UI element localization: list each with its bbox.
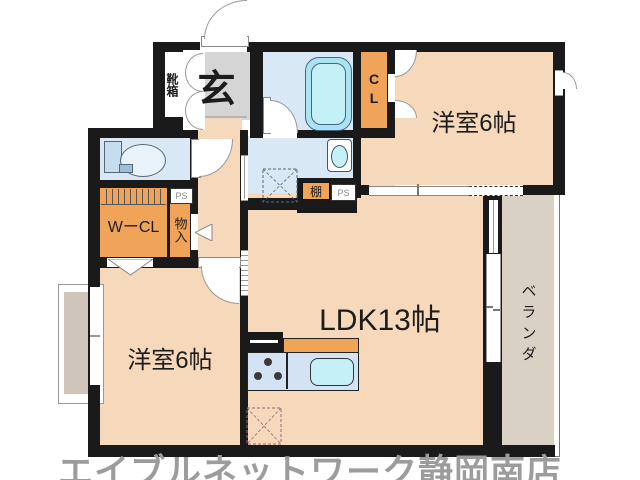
pipe-space-right: PS xyxy=(331,184,356,201)
room-partition-sliding-door xyxy=(369,186,469,196)
bathtub-inner xyxy=(311,63,346,125)
stove-burner-3 xyxy=(264,358,272,366)
shelf-label: 棚 xyxy=(302,182,330,200)
room-partition-tick xyxy=(417,184,419,196)
wcl-folding-door-mark xyxy=(108,259,153,276)
veranda-upper-window-line xyxy=(493,200,494,253)
wall-right xyxy=(553,42,565,195)
side-window-ledge xyxy=(64,292,91,394)
wall-cl-bottom xyxy=(358,128,395,138)
stove-burner-2 xyxy=(274,372,282,380)
stove-burner-1 xyxy=(254,372,262,380)
entrance-door-arc xyxy=(204,0,247,39)
wash-basin-bowl xyxy=(331,145,348,168)
veranda-sliding-door-tick-1 xyxy=(486,306,493,308)
bedroom-bottom-west-window-tick xyxy=(90,335,100,337)
hall-ldk-accordion-door xyxy=(241,250,248,296)
kitchen-stub-line xyxy=(250,340,278,343)
kitchen-sink xyxy=(310,358,354,386)
kitchen-counter-divider xyxy=(286,352,288,389)
veranda-sliding-door xyxy=(486,254,501,362)
wall-toilet-bottom xyxy=(88,180,198,188)
pipe-space-left: PS xyxy=(170,188,193,204)
genkan-label: 玄 xyxy=(183,56,250,114)
washroom-sliding-door-line xyxy=(244,155,245,199)
storage-label: 物入 xyxy=(170,206,190,254)
wcl-label: WーCL xyxy=(100,212,167,238)
store-name-watermark: エイブルネットワーク静岡南店 xyxy=(58,444,598,480)
storage-door-mark xyxy=(195,224,213,241)
refrigerator-area xyxy=(246,407,282,445)
shoebox-label: 靴箱 xyxy=(162,56,183,114)
wall-partition-right xyxy=(523,185,565,195)
veranda-sliding-door-tick-2 xyxy=(493,309,500,311)
toilet-seat-mark xyxy=(119,164,133,173)
washing-machine-area xyxy=(262,168,298,203)
bedroom-bottom-label: 洋室6帖 xyxy=(100,342,240,372)
wall-under-shoebox xyxy=(160,117,185,132)
wall-washroom-right xyxy=(353,42,361,198)
closet-cl-opening xyxy=(388,74,395,102)
ldk-label: LDK13帖 xyxy=(280,300,480,334)
bedroom-top-floor-notch xyxy=(361,138,395,188)
wcl-hanger-rod xyxy=(101,189,166,205)
floor-plan: 玄 靴箱 CL 洋室6帖 WーCL 物入 PS PS 棚 LDK13帖 洋室6帖… xyxy=(0,0,640,480)
bedroom-top-east-window xyxy=(555,70,563,96)
veranda-label: ベランダ xyxy=(514,265,542,385)
bedroom-top-veranda-window xyxy=(469,186,523,196)
wall-genkan-bath xyxy=(250,42,263,138)
bedroom-top-east-window-flap xyxy=(563,72,577,89)
bedroom-top-label: 洋室6帖 xyxy=(395,105,553,135)
closet-cl-label: CL xyxy=(361,58,387,122)
